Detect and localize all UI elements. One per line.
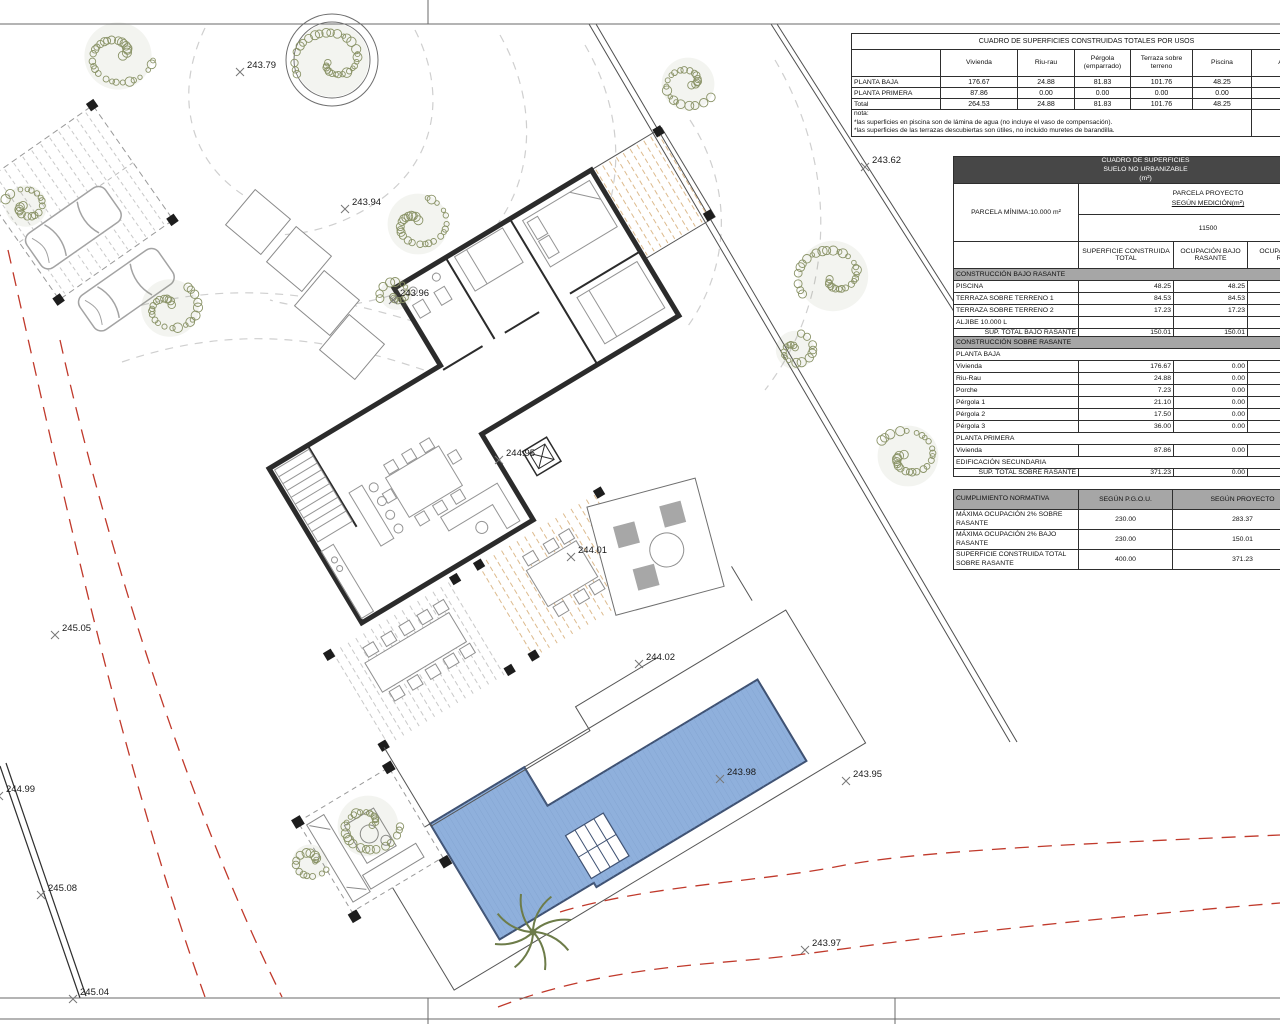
table-cell [1248, 385, 1280, 397]
spot-elevation-label: 244.02 [635, 652, 675, 668]
table-row: Pérgola 217.500.00 [954, 409, 1280, 421]
table-cell: 0.00 [1174, 409, 1248, 421]
spot-elevation-label: 245.04 [69, 987, 109, 1003]
table-cell: 81.83 [1075, 77, 1131, 88]
table-cell: Terraza sobre terreno [1131, 50, 1193, 77]
table-row: Vivienda176.670.00 [954, 361, 1280, 373]
table-cell: 24.88 [1018, 99, 1075, 110]
svg-text:245.05: 245.05 [62, 623, 91, 634]
table-row: PLANTA BAJA [954, 349, 1280, 361]
table-cell: 0.00 [1174, 373, 1248, 385]
table-cell: 230.00 [1079, 510, 1173, 530]
table-row: EDIFICACIÓN SECUNDARIA [954, 457, 1280, 469]
table-cell: CUMPLIMIENTO NORMATIVA [954, 490, 1079, 510]
svg-text:243.94: 243.94 [352, 197, 381, 208]
table-row: TERRAZA SOBRE TERRENO 217.2317.23 [954, 305, 1280, 317]
table-cell: SUPERFICIE CONSTRUIDA TOTAL [1079, 242, 1174, 269]
table-row: SUPERFICIE CONSTRUIDA TOTALOCUPACIÓN BAJ… [954, 242, 1280, 269]
table-cell: SUP. TOTAL SOBRE RASANTE [954, 469, 1079, 477]
table-cell: 0.00 [1174, 469, 1248, 477]
tree-icon [877, 426, 938, 487]
table-row: SUP. TOTAL SOBRE RASANTE371.230.00 [954, 469, 1280, 477]
table-row: ViviendaRiu-rauPérgola (emparrado)Terraz… [852, 50, 1280, 77]
table-cell: 10 [1252, 77, 1280, 88]
table-cell: 48.25 [1174, 281, 1248, 293]
table-cell: MÁXIMA OCUPACIÓN 2% SOBRE RASANTE [954, 510, 1079, 530]
table-cell: 17.23 [1079, 305, 1174, 317]
table-cell: 264.53 [941, 99, 1018, 110]
table-cell: PLANTA PRIMERA [954, 433, 1280, 445]
table-cell: TERRAZA SOBRE TERRENO 2 [954, 305, 1079, 317]
svg-text:244.95: 244.95 [506, 448, 535, 459]
table-row: PARCELA MÍNIMA:10.000 m²PARCELA PROYECTO… [954, 184, 1280, 215]
tree-icon [388, 194, 450, 255]
table-cell [1248, 397, 1280, 409]
tree-icon [662, 58, 716, 111]
table-cell: 0.00 [1131, 88, 1193, 99]
table-note: *las superficies de las terrazas descubi… [854, 127, 1249, 136]
table-cell: CONSTRUCCIÓN SOBRE RASANTE [954, 337, 1280, 349]
table-cell: EDIFICACIÓN SECUNDARIA [954, 457, 1280, 469]
table-cell: 0.00 [1174, 421, 1248, 433]
suelo-no-urbanizable-table: CUADRO DE SUPERFICIESSUELO NO URBANIZABL… [953, 156, 1280, 477]
table-cell: SUPERFICIE CONSTRUIDA TOTAL SOBRE RASANT… [954, 550, 1079, 570]
table-cell: 48.25 [1193, 99, 1252, 110]
table-cell: nota:*las superficies en piscina son de … [852, 110, 1252, 137]
tree-icon [794, 241, 868, 311]
table-cell: CUADRO DE SUPERFICIES CONSTRUIDAS TOTALE… [852, 34, 1280, 50]
table-cell: PLANTA PRIMERA [852, 88, 941, 99]
table-row: nota:*las superficies en piscina son de … [852, 110, 1280, 137]
table-row: CONSTRUCCIÓN SOBRE RASANTE [954, 337, 1280, 349]
areas-by-use-table: CUADRO DE SUPERFICIES CONSTRUIDAS TOTALE… [851, 33, 1280, 137]
table-cell [1248, 409, 1280, 421]
table-cell [1248, 305, 1280, 317]
spot-elevation-label: 243.62 [861, 155, 901, 171]
table-cell: SEGÚN P.G.O.U. [1079, 490, 1173, 510]
svg-text:243.98: 243.98 [727, 767, 756, 778]
table-row: Pérgola 336.000.00 [954, 421, 1280, 433]
table-cell [1079, 317, 1174, 329]
table-row: PLANTA PRIMERA [954, 433, 1280, 445]
table-row: Vivienda87.860.00 [954, 445, 1280, 457]
table-cell: Vivienda [954, 361, 1079, 373]
table-row: Pérgola 121.100.00 [954, 397, 1280, 409]
table-cell: 7.23 [1079, 385, 1174, 397]
table-row: SUP. TOTAL BAJO RASANTE150.01150.01 [954, 329, 1280, 337]
svg-text:243.96: 243.96 [400, 288, 429, 299]
svg-text:244.02: 244.02 [646, 652, 675, 663]
table-cell: Total [852, 99, 941, 110]
table-cell: 21.10 [1079, 397, 1174, 409]
table-cell: 0.00 [1075, 88, 1131, 99]
table-cell: 176.67 [1079, 361, 1174, 373]
fence-line [0, 763, 86, 998]
table-cell: 81.83 [1075, 99, 1131, 110]
table-cell: CUADRO DE SUPERFICIESSUELO NO URBANIZABL… [954, 157, 1280, 184]
table-row: MÁXIMA OCUPACIÓN 2% BAJO RASANTE230.0015… [954, 530, 1280, 550]
table-cell: 0.00 [1018, 88, 1075, 99]
table-cell: 84.53 [1079, 293, 1174, 305]
table-cell: 371.23 [1173, 550, 1280, 570]
table-row: PLANTA PRIMERA87.860.000.000.000.000. [852, 88, 1280, 99]
table-cell: Vivienda [954, 445, 1079, 457]
table-cell: 0.00 [1193, 88, 1252, 99]
table-cell: PARCELA PROYECTOSEGÚN MEDICIÓN(m²) [1079, 184, 1280, 215]
table-cell: OCUPACIÓN SOBRE RASANTE [1248, 242, 1280, 269]
table-row: CONSTRUCCIÓN BAJO RASANTE [954, 269, 1280, 281]
table-note: nota: [854, 110, 1249, 119]
table-cell: 150.01 [1079, 329, 1174, 337]
table-cell: TERRAZA SOBRE TERRENO 1 [954, 293, 1079, 305]
table-cell: Aljibe [1252, 50, 1280, 77]
table-cell: 150.01 [1173, 530, 1280, 550]
table-cell: 24.88 [1079, 373, 1174, 385]
table-cell: 10 [1252, 99, 1280, 110]
table-cell: 24.88 [1018, 77, 1075, 88]
table-cell [1248, 329, 1280, 337]
table-cell: 0.00 [1174, 445, 1248, 457]
table-cell: PLANTA BAJA [954, 349, 1280, 361]
svg-text:244.01: 244.01 [578, 545, 607, 556]
svg-text:243.95: 243.95 [853, 769, 882, 780]
svg-text:245.04: 245.04 [80, 987, 109, 998]
tree-icon [776, 330, 817, 369]
table-cell [1248, 281, 1280, 293]
table-cell [954, 242, 1079, 269]
table-row: CUADRO DE SUPERFICIES CONSTRUIDAS TOTALE… [852, 34, 1280, 50]
table-row: PLANTA BAJA176.6724.8881.83101.7648.2510 [852, 77, 1280, 88]
table-cell: PLANTA BAJA [852, 77, 941, 88]
stepping-stones [226, 190, 385, 380]
table-cell: PARCELA MÍNIMA:10.000 m² [954, 184, 1079, 242]
spot-elevation-label: 245.05 [51, 623, 91, 639]
table-cell: 101.76 [1131, 77, 1193, 88]
house-floorplan [179, 125, 909, 828]
table-cell: 17.50 [1079, 409, 1174, 421]
tree-icon [84, 22, 156, 89]
svg-text:243.97: 243.97 [812, 938, 841, 949]
table-cell: 150.01 [1174, 329, 1248, 337]
table-cell: 11500 [1079, 215, 1280, 242]
table-cell: 176.67 [941, 77, 1018, 88]
table-cell: SEGÚN PROYECTO [1173, 490, 1280, 510]
table-cell [1174, 317, 1248, 329]
table-row: Porche7.230.00 [954, 385, 1280, 397]
cumplimiento-normativa-table: CUMPLIMIENTO NORMATIVASEGÚN P.G.O.U.SEGÚ… [953, 489, 1280, 570]
table-cell: 0.00 [1174, 361, 1248, 373]
table-row: SUPERFICIE CONSTRUIDA TOTAL SOBRE RASANT… [954, 550, 1280, 570]
table-cell [1248, 445, 1280, 457]
table-cell: CONSTRUCCIÓN BAJO RASANTE [954, 269, 1280, 281]
table-row: Riu-Rau24.880.00 [954, 373, 1280, 385]
table-cell: 48.25 [1079, 281, 1174, 293]
table-cell: Vivienda [941, 50, 1018, 77]
table-cell [1248, 317, 1280, 329]
table-cell: PISCINA [954, 281, 1079, 293]
table-cell: 0.00 [1174, 397, 1248, 409]
table-cell: 0. [1252, 88, 1280, 99]
table-cell [852, 50, 941, 77]
table-row: Total264.5324.8881.83101.7648.2510 [852, 99, 1280, 110]
table-cell: Pérgola (emparrado) [1075, 50, 1131, 77]
table-note: *las superficies en piscina son de lámin… [854, 119, 1249, 128]
table-cell: OCUPACIÓN BAJO RASANTE [1174, 242, 1248, 269]
table-cell: 48.25 [1193, 77, 1252, 88]
spot-elevation-label: 243.79 [236, 60, 276, 76]
table-cell: 230.00 [1079, 530, 1173, 550]
table-cell: 36.00 [1079, 421, 1174, 433]
table-cell: 84.53 [1174, 293, 1248, 305]
svg-text:244.99: 244.99 [6, 784, 35, 795]
table-cell: 87.86 [941, 88, 1018, 99]
table-cell: Pérgola 3 [954, 421, 1079, 433]
spot-elevation-label: 243.94 [341, 197, 381, 213]
table-cell: 400.00 [1079, 550, 1173, 570]
table-cell: Pérgola 2 [954, 409, 1079, 421]
tree-icon [141, 279, 202, 337]
table-cell [1252, 110, 1280, 137]
patio-seating [587, 478, 724, 615]
table-cell: 283.37 [1173, 510, 1280, 530]
table-cell: Piscina [1193, 50, 1252, 77]
table-cell: 0.00 [1174, 385, 1248, 397]
table-cell: SUP. TOTAL BAJO RASANTE [954, 329, 1079, 337]
spot-elevation-label: 243.95 [842, 769, 882, 785]
table-cell [1248, 373, 1280, 385]
table-cell: ALJIBE 10.000 L [954, 317, 1079, 329]
table-cell: Riu-rau [1018, 50, 1075, 77]
table-cell: 371.23 [1079, 469, 1174, 477]
table-cell: Pérgola 1 [954, 397, 1079, 409]
table-cell: 17.23 [1174, 305, 1248, 317]
table-cell: 101.76 [1131, 99, 1193, 110]
table-row: CUADRO DE SUPERFICIESSUELO NO URBANIZABL… [954, 157, 1280, 184]
table-cell: Riu-Rau [954, 373, 1079, 385]
table-row: ALJIBE 10.000 L [954, 317, 1280, 329]
svg-text:245.08: 245.08 [48, 883, 77, 894]
table-cell: 87.86 [1079, 445, 1174, 457]
table-row: MÁXIMA OCUPACIÓN 2% SOBRE RASANTE230.002… [954, 510, 1280, 530]
table-cell [1248, 469, 1280, 477]
table-cell: Porche [954, 385, 1079, 397]
tree-icon [286, 14, 378, 106]
table-cell: MÁXIMA OCUPACIÓN 2% BAJO RASANTE [954, 530, 1079, 550]
tree-icon [1, 185, 47, 227]
table-cell [1248, 421, 1280, 433]
table-row: TERRAZA SOBRE TERRENO 184.5384.53 [954, 293, 1280, 305]
svg-text:243.79: 243.79 [247, 60, 276, 71]
table-cell [1248, 361, 1280, 373]
svg-text:243.62: 243.62 [872, 155, 901, 166]
table-row: CUMPLIMIENTO NORMATIVASEGÚN P.G.O.U.SEGÚ… [954, 490, 1280, 510]
table-cell [1248, 293, 1280, 305]
table-row: PISCINA48.2548.25 [954, 281, 1280, 293]
